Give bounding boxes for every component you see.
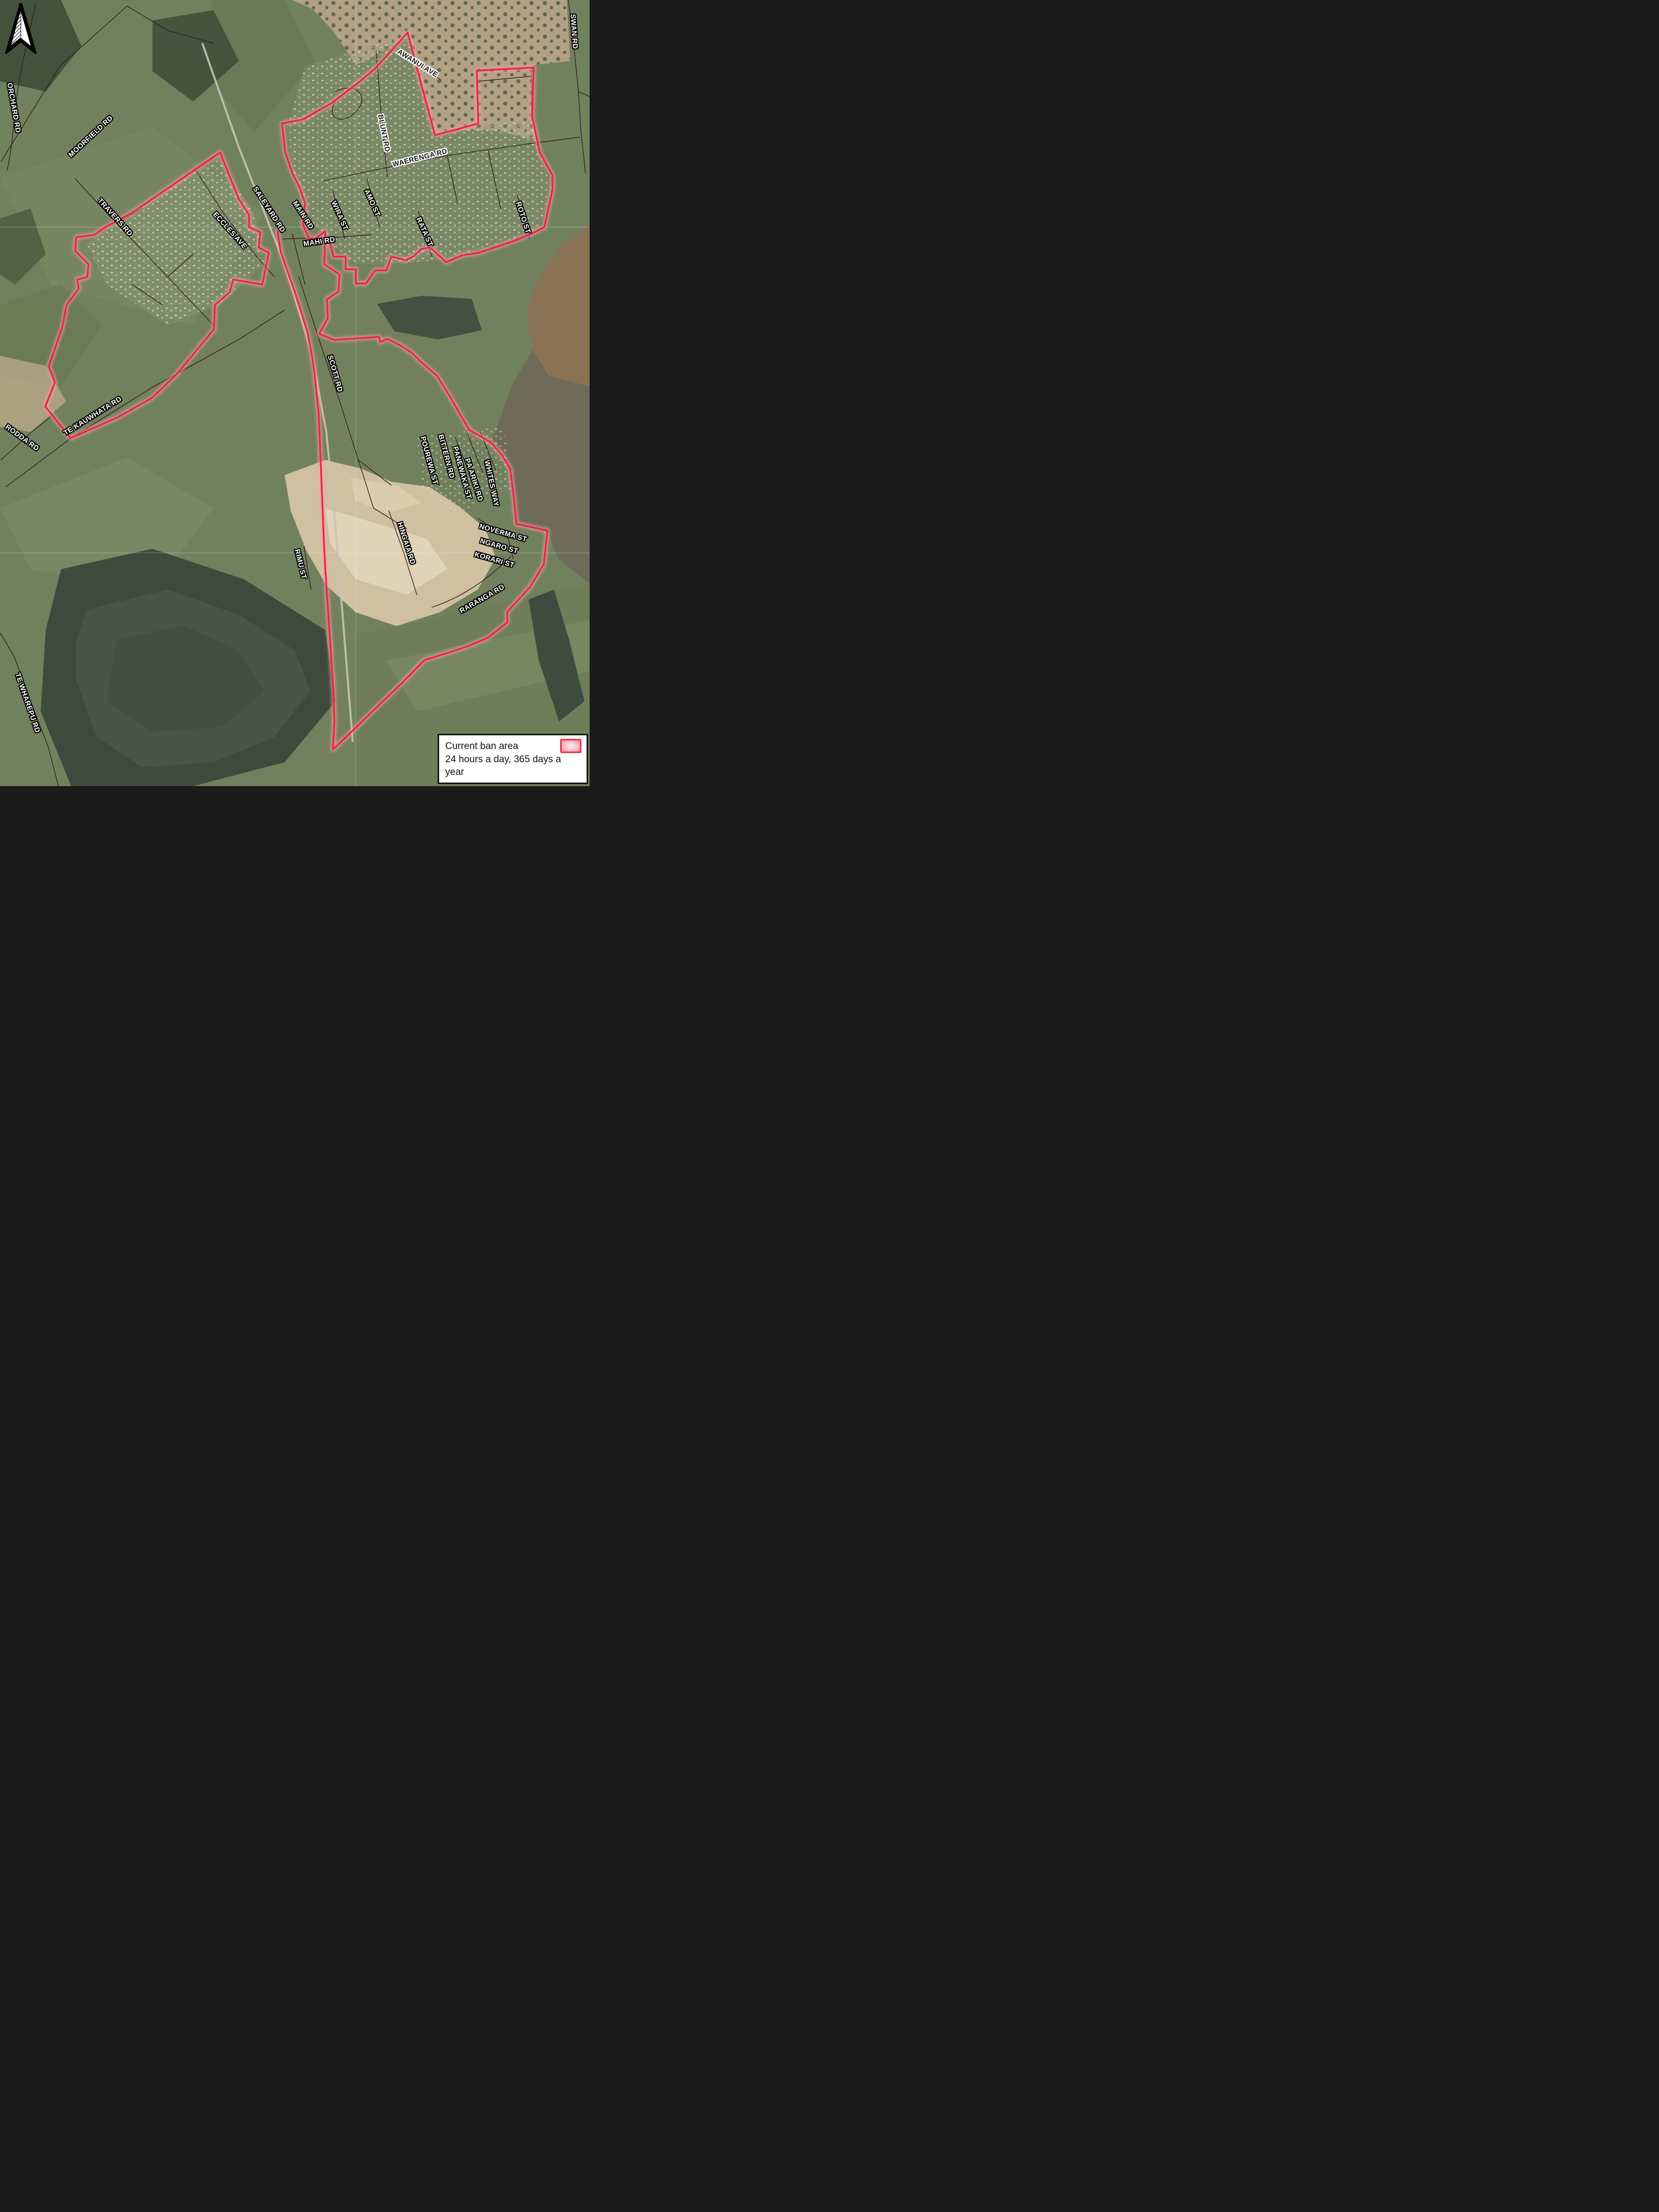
satellite-map	[0, 0, 590, 786]
north-arrow-icon	[5, 3, 37, 54]
legend-title: Current ban area	[445, 740, 518, 753]
ban-area-swatch	[560, 739, 581, 753]
map-page: ORCHARD RDMOORFIELD RDSWAN RDAWANUI AVEB…	[0, 0, 590, 786]
legend-subtitle: 24 hours a day, 365 days a year	[445, 753, 581, 778]
terrain-layer	[0, 0, 590, 786]
legend-box: Current ban area 24 hours a day, 365 day…	[438, 734, 588, 784]
